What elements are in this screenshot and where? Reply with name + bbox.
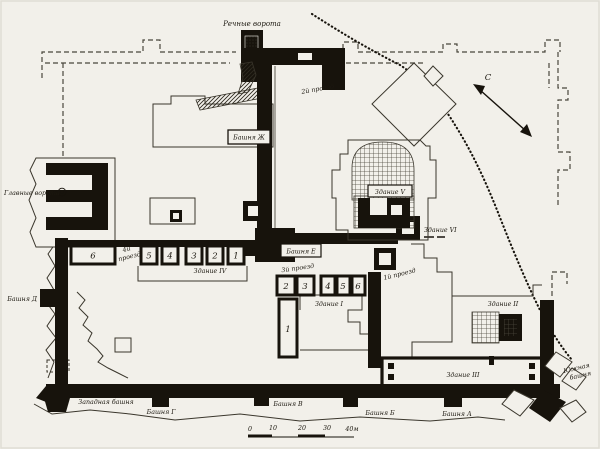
building6-label: Здание VI [424,227,457,234]
plan-drawing: С Речные ворота 2й проезд [0,0,600,449]
river-gate-slot [298,53,312,60]
main-gate-label: Главные ворота [3,190,60,197]
tower-a-body [444,398,462,407]
tower-e-label: Башня Е [285,249,316,256]
building3-group: Здание III [382,356,543,388]
scale-tick-30: 30 [323,425,331,432]
room-a4-number: 4 [166,252,172,262]
west-wall-body [55,238,68,386]
building3-pier-1 [388,363,394,369]
east-range-wall [272,233,398,244]
room-a3-number: 3 [191,252,196,262]
tower-g-body [152,398,169,407]
building4-label: Здание IV [194,268,228,275]
tower-v-body [254,398,269,406]
east-wall-body [540,300,554,392]
room-a1-number: 1 [233,252,238,262]
passage1-gate-interior [379,253,391,265]
scale-tick-20: 20 [297,425,306,432]
tower-v-label: Башня В [272,401,303,408]
well-interior [173,213,179,219]
building3-pier-4 [529,374,535,380]
fortress-plan-figure: С Речные ворота 2й проезд [0,0,600,449]
building3-label: Здание III [446,372,480,379]
south-wall-body [46,384,560,398]
building5-window [391,205,402,215]
tower-d-body [40,289,56,307]
room-a6-number: 6 [90,252,96,262]
scale-tick-10: 10 [269,425,277,432]
scale-bar-seg2 [298,435,325,438]
court-divider-wall [368,272,381,368]
tower-g-label: Башня Г [146,409,177,416]
central-wall-body [257,63,272,255]
main-gate-bar1 [46,163,98,175]
west-tower-body [44,398,70,412]
building3-pier-2 [388,374,394,380]
tower-d-label: Башня Д [6,296,38,303]
building2-label: Здание II [488,301,519,308]
tower-b-label: Башня Б [364,410,395,417]
building5-u-notch [370,198,387,215]
building1-label: Здание I [315,301,344,308]
river-gate-label: Речные ворота [222,20,281,28]
room-b1-number: 1 [285,325,290,335]
west-tower-label: Западная башня [78,399,133,406]
tower-b-body [343,398,358,407]
room-b5-number: 5 [340,282,345,292]
building3-pier-3 [529,363,535,369]
tower-a-label: Башня А [441,411,472,418]
room-b3-number: 3 [302,282,307,292]
north-label: С [485,73,492,83]
building2-inner-hatch [504,319,517,336]
building2-hatch-block [472,312,499,343]
building3-door-pier [489,356,494,365]
room-b4-number: 4 [324,282,330,292]
room-b2-number: 2 [282,282,288,292]
main-gate-spine [92,163,108,230]
building5-label: Здание V [375,189,407,196]
main-gate-ref-dot [60,190,64,194]
room-a5-number: 5 [146,252,151,262]
scale-tick-0: 0 [248,426,252,433]
scale-bar-seg1 [248,435,272,438]
wall-annex-room-interior [248,206,258,216]
courtyard-pit-outline [115,338,131,352]
room-a2-number: 2 [211,252,217,262]
scale-tick-40: 40м [344,426,358,433]
tower-zh-label: Башня Ж [232,135,266,142]
room-b6-number: 6 [355,282,361,292]
